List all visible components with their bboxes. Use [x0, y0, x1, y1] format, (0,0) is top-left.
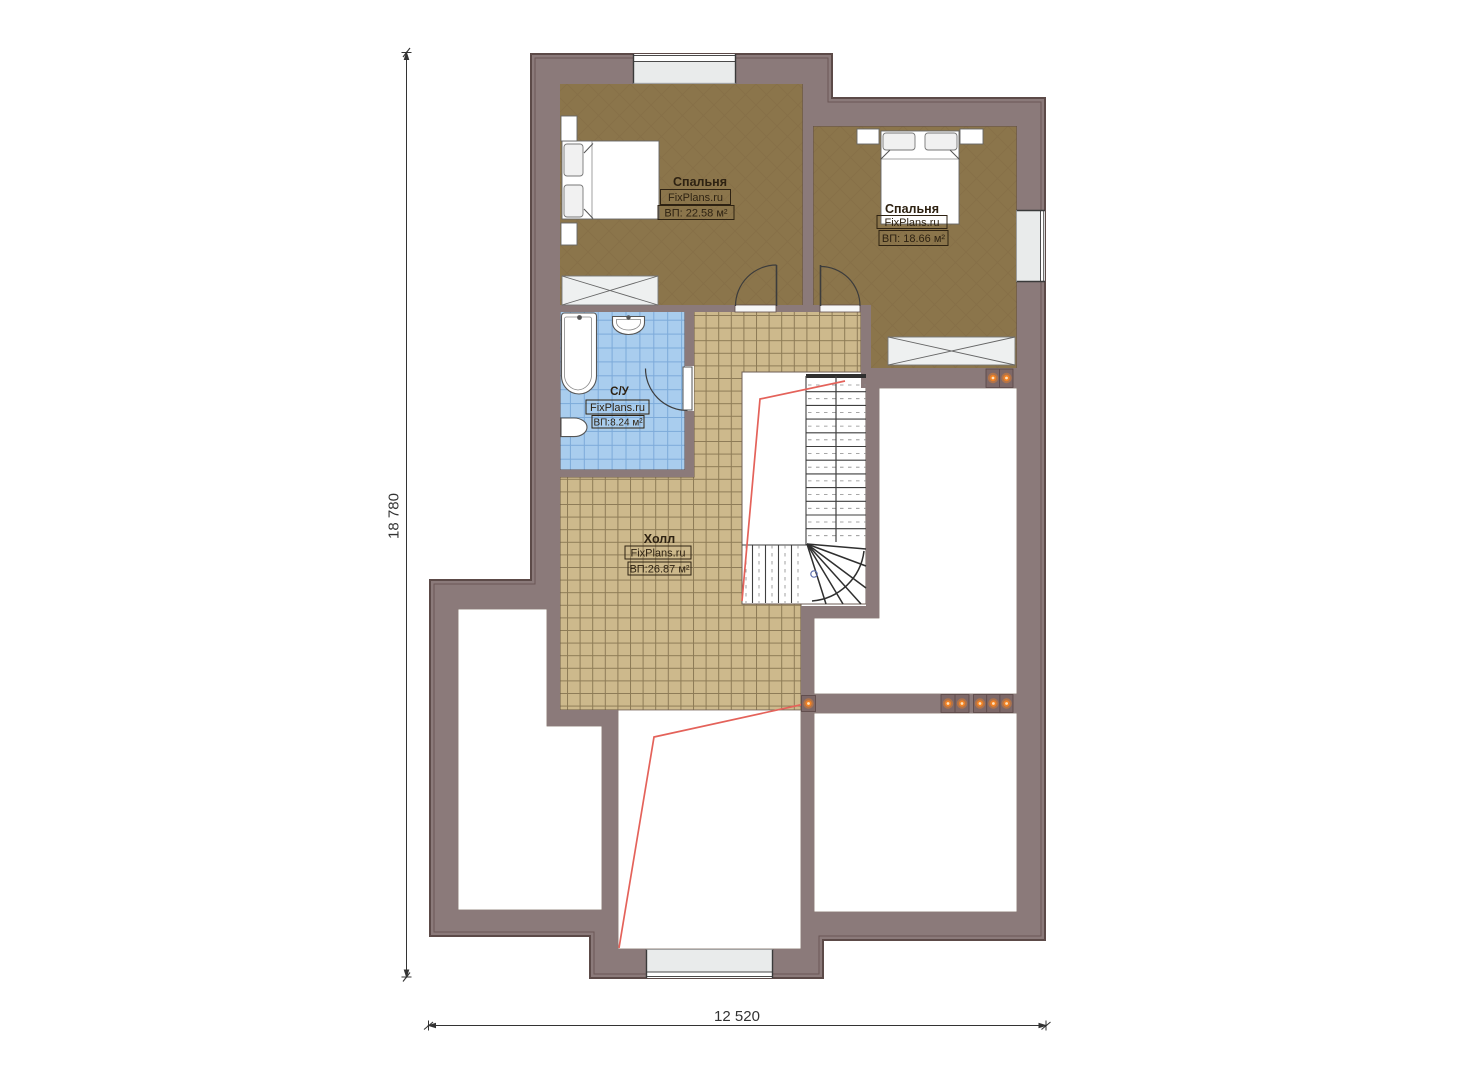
- svg-text:18 780: 18 780: [386, 493, 403, 539]
- svg-text:С/У: С/У: [610, 386, 630, 398]
- svg-text:ВП:8.24 м²: ВП:8.24 м²: [593, 418, 643, 429]
- svg-text:FixPlans.ru: FixPlans.ru: [884, 217, 939, 229]
- svg-text:ВП:26.87 м²: ВП:26.87 м²: [629, 564, 689, 576]
- svg-text:12 520: 12 520: [714, 1008, 760, 1025]
- svg-text:Спальня: Спальня: [673, 175, 727, 189]
- svg-text:FixPlans.ru: FixPlans.ru: [590, 402, 645, 414]
- svg-text:Холл: Холл: [644, 532, 675, 546]
- svg-text:ВП: 18.66 м²: ВП: 18.66 м²: [882, 233, 946, 245]
- svg-text:FixPlans.ru: FixPlans.ru: [668, 192, 723, 204]
- svg-text:ВП: 22.58 м²: ВП: 22.58 м²: [664, 208, 728, 220]
- svg-text:FixPlans.ru: FixPlans.ru: [630, 548, 685, 560]
- svg-text:Спальня: Спальня: [885, 202, 939, 216]
